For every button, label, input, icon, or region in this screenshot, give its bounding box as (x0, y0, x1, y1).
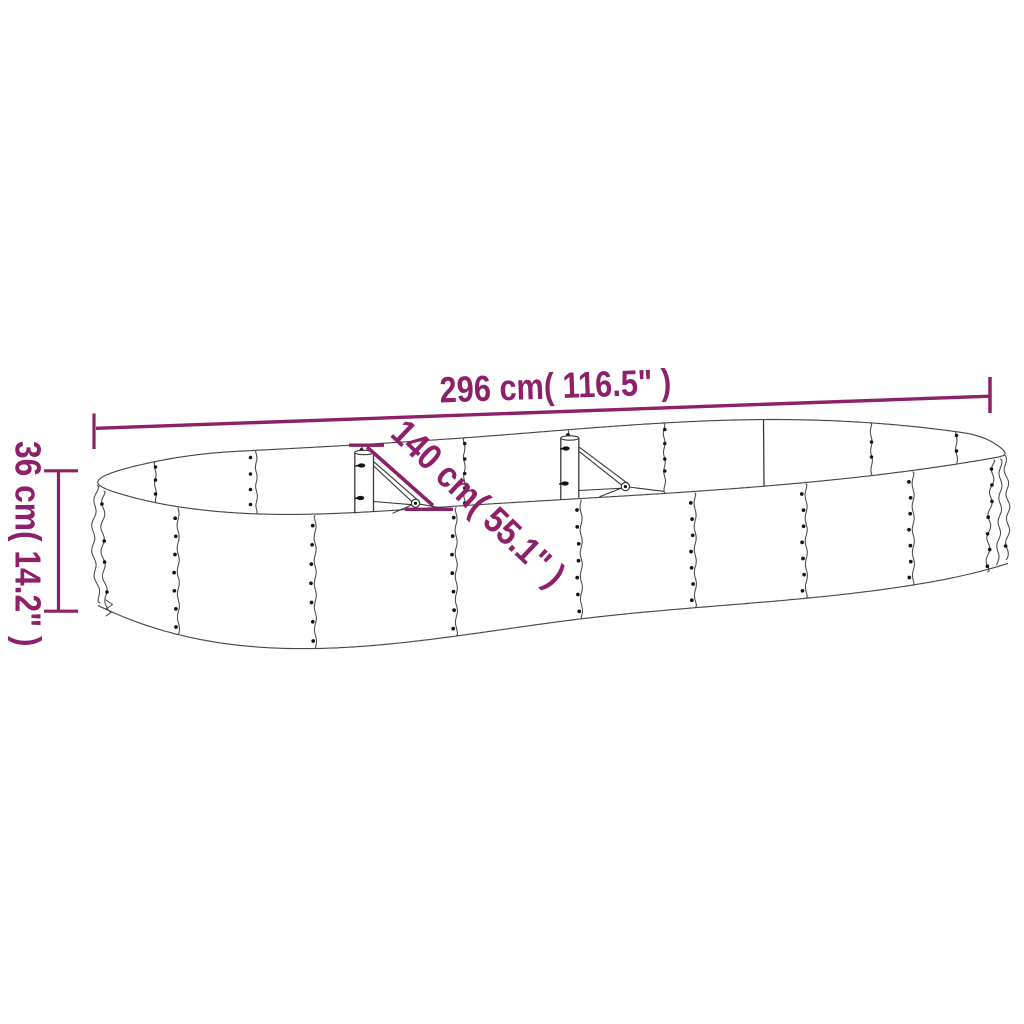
svg-text:296 cm( 116.5" ): 296 cm( 116.5" ) (439, 362, 672, 411)
svg-text:36 cm( 14.2" ): 36 cm( 14.2" ) (7, 441, 48, 647)
